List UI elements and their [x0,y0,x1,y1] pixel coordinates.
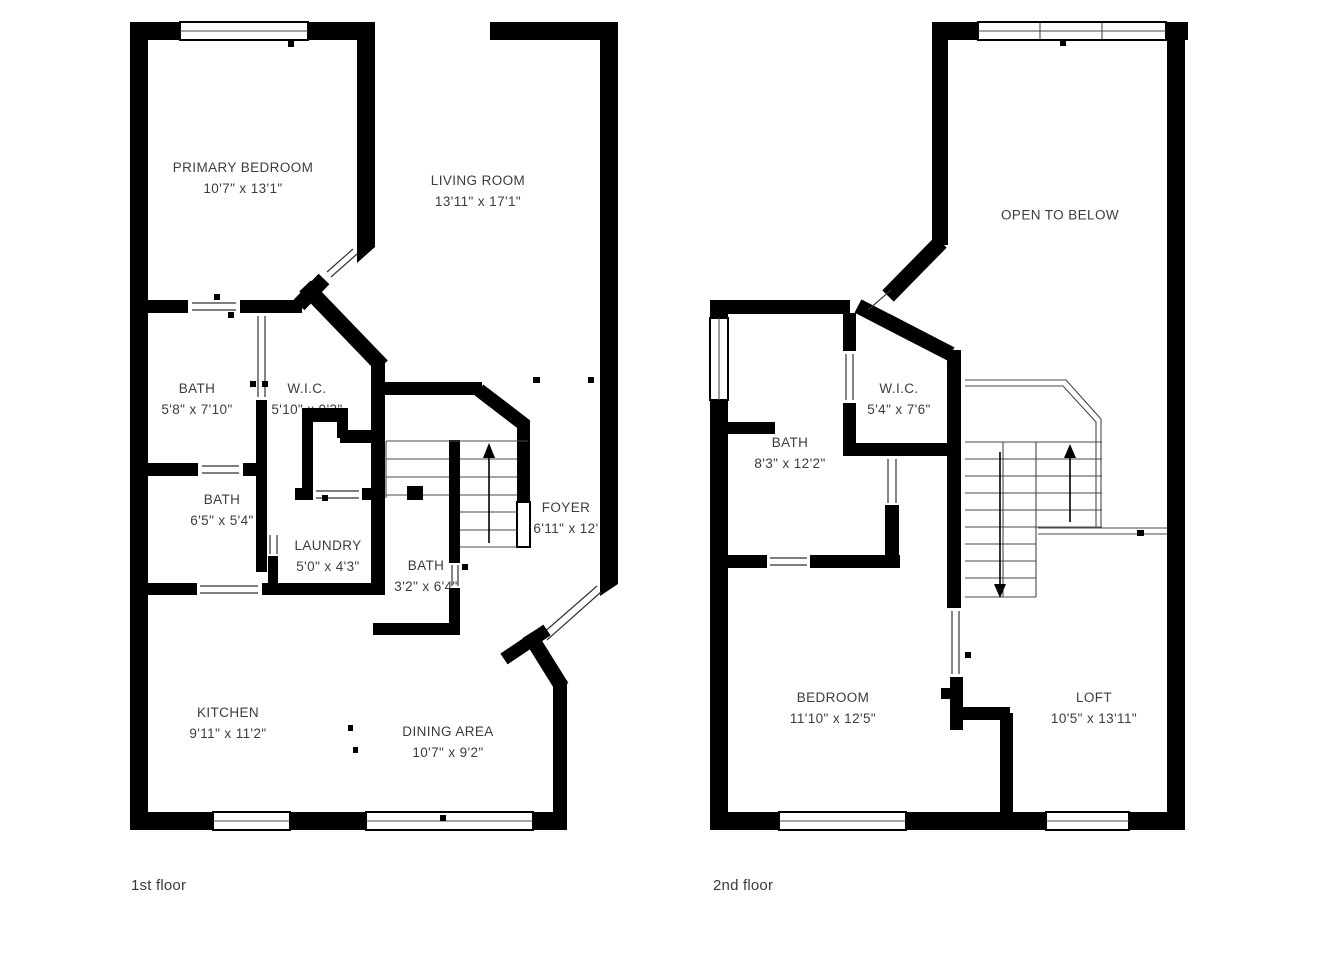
room-label-laundry: LAUNDRY 5'0" x 4'3" [294,535,361,577]
room-label-loft: LOFT 10'5" x 13'11" [1051,687,1137,729]
room-label-foyer: FOYER 6'11" x 12' [533,497,598,539]
room-label-primary-bedroom: PRIMARY BEDROOM 10'7" x 13'1" [173,157,314,199]
room-label-dining-area: DINING AREA 10'7" x 9'2" [402,721,493,763]
room-label-bath-2f: BATH 8'3" x 12'2" [754,432,825,474]
room-label-bath-2: BATH 6'5" x 5'4" [190,489,253,531]
room-label-bath-3: BATH 3'2" x 6'4" [394,555,457,597]
caption-2nd-floor: 2nd floor [713,877,773,894]
room-label-bath-1: BATH 5'8" x 7'10" [161,378,232,420]
room-label-bedroom-2f: BEDROOM 11'10" x 12'5" [790,687,876,729]
caption-1st-floor: 1st floor [131,877,186,894]
floor-plan-page: PRIMARY BEDROOM 10'7" x 13'1" LIVING ROO… [0,0,1324,960]
room-label-wic-1: W.I.C. 5'10" x 9'3" [271,378,342,420]
room-labels-layer: PRIMARY BEDROOM 10'7" x 13'1" LIVING ROO… [0,0,1324,960]
room-label-open-to-below: OPEN TO BELOW [1001,205,1119,226]
room-label-wic-2f: W.I.C. 5'4" x 7'6" [867,378,930,420]
room-label-living-room: LIVING ROOM 13'11" x 17'1" [431,170,525,212]
room-label-kitchen: KITCHEN 9'11" x 11'2" [189,702,266,744]
